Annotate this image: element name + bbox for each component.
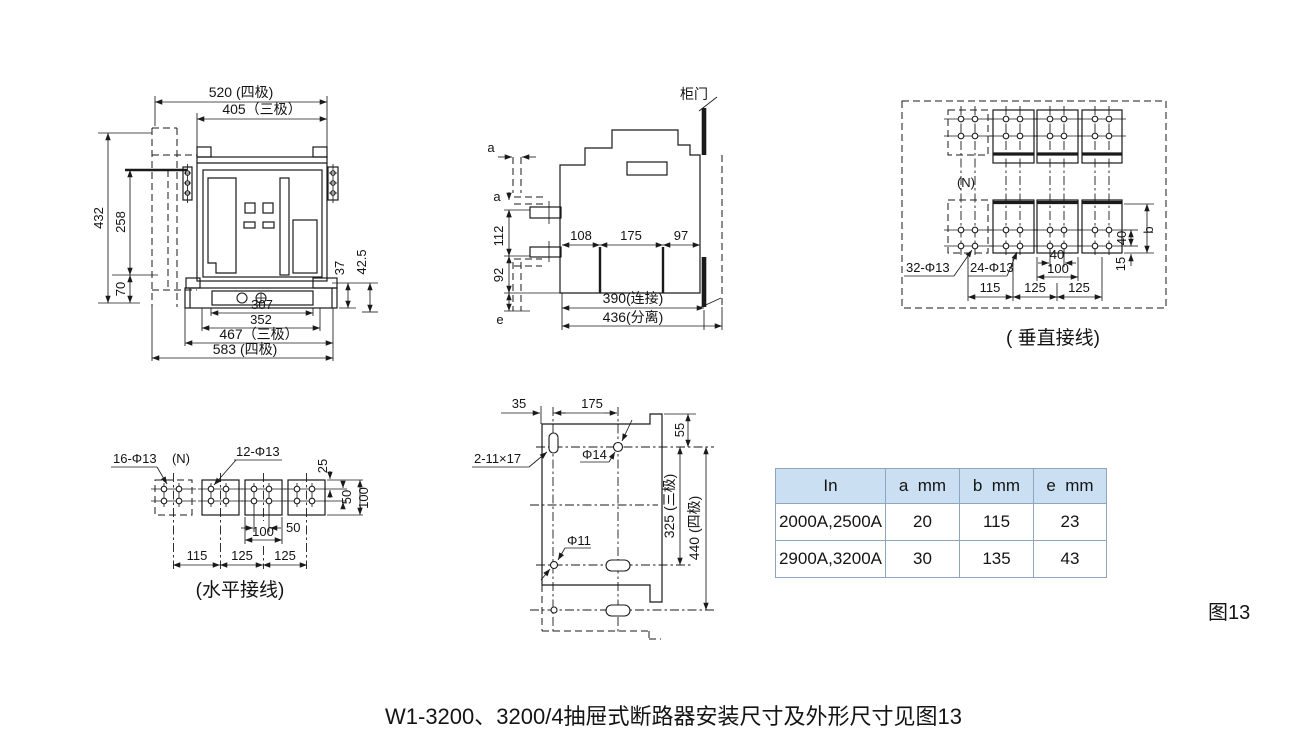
mounting-plate-drawing: 35 175 2-11×17 Φ14 Φ11 55 325 (三极) 440 (… [472, 396, 716, 639]
vertical-wiring-caption: ( 垂直接线) [1006, 327, 1100, 349]
hole-phi11 [551, 562, 558, 569]
dim-467: 467（三极） [219, 326, 298, 342]
hole-count-12: 12-Φ13 [236, 444, 280, 459]
cabinet-door-label: 柜门 [680, 86, 708, 102]
neutral-pole-label: (N) [957, 175, 975, 190]
dim-436-separated: 436(分离) [603, 309, 664, 325]
hole-count-16: 16-Φ13 [113, 451, 157, 466]
neutral-pole-label: (N) [172, 451, 190, 466]
phi11-label: Φ11 [567, 533, 591, 548]
dim-25: 25 [315, 459, 330, 473]
vertical-wiring-drawing: (N) 32-Φ13 24-Φ13 40 100 [902, 101, 1166, 349]
cell-e-0: 23 [1034, 504, 1107, 541]
spec-table-header-row: In a mm b mm e mm [776, 469, 1107, 504]
dim-520: 520 (四极) [209, 84, 274, 100]
dim-a-top: a [487, 140, 495, 155]
cell-in-0: 2000A,2500A [776, 504, 886, 541]
dim-15: 15 [1113, 257, 1128, 271]
dim-37: 37 [332, 261, 347, 275]
cell-in-1: 2900A,3200A [776, 541, 886, 578]
dim-35: 35 [512, 396, 526, 411]
dim-175-side: 175 [620, 228, 642, 243]
dim-40-horizontal: 40 [1050, 247, 1064, 262]
dim-42-5: 42.5 [354, 249, 369, 274]
slot-hole-11x17 [549, 433, 558, 453]
cell-a-1: 30 [886, 541, 960, 578]
spec-table: In a mm b mm e mm 2000A,2500A 20 115 23 … [775, 468, 1107, 578]
col-header-b: b mm [960, 469, 1034, 504]
dim-a-left: a [493, 189, 501, 204]
dim-175-plate: 175 [581, 396, 603, 411]
dim-e: e [496, 312, 503, 327]
cell-b-0: 115 [960, 504, 1034, 541]
dim-432: 432 [91, 207, 106, 229]
dim-405: 405（三极） [222, 101, 301, 117]
dim-258: 258 [113, 211, 128, 233]
col-header-e: e mm [1034, 469, 1107, 504]
horizontal-wiring-caption: (水平接线) [196, 579, 285, 601]
dim-352: 352 [250, 312, 272, 327]
dim-125b-hw: 125 [274, 548, 296, 563]
dim-40-vertical: 40 [1114, 231, 1129, 245]
technical-drawing-canvas: 520 (四极) 405（三极） 432 258 70 37 42.5 307 … [0, 0, 1313, 746]
dim-125a-vw: 125 [1024, 280, 1046, 295]
dim-125b-vw: 125 [1068, 280, 1090, 295]
dim-50-vertical: 50 [339, 490, 354, 504]
terminal-block [944, 200, 1126, 253]
dim-325-3pole: 325 (三极) [661, 474, 677, 539]
terminal-block [944, 110, 1126, 163]
horizontal-wiring-drawing: 16-Φ13 (N) 12-Φ13 25 50 100 50 100 115 1… [111, 444, 371, 601]
front-view-drawing: 520 (四极) 405（三极） 432 258 70 37 42.5 307 … [91, 84, 378, 361]
table-row: 2000A,2500A 20 115 23 [776, 504, 1107, 541]
hole-count-32: 32-Φ13 [906, 260, 950, 275]
dim-100-horizontal: 100 [1047, 261, 1069, 276]
dim-55: 55 [672, 423, 687, 437]
hole-phi14 [614, 443, 623, 452]
mounting-plate-outline [542, 414, 662, 602]
dim-440-4pole: 440 (四极) [686, 496, 702, 561]
slot-label: 2-11×17 [474, 451, 521, 466]
page-caption: W1-3200、3200/4抽屉式断路器安装尺寸及外形尺寸见图13 [385, 699, 962, 731]
dim-112: 112 [491, 226, 506, 247]
dim-307: 307 [251, 297, 273, 312]
dim-100-horizontal: 100 [252, 524, 274, 539]
dim-50-horizontal: 50 [286, 520, 300, 535]
cell-e-1: 43 [1034, 541, 1107, 578]
terminal-block [151, 480, 347, 515]
cell-b-1: 135 [960, 541, 1034, 578]
dim-115-vw: 115 [980, 280, 1001, 295]
cell-a-0: 20 [886, 504, 960, 541]
dim-108: 108 [570, 228, 592, 243]
dim-125a-hw: 125 [231, 548, 253, 563]
breaker-side-profile [560, 130, 700, 293]
figure-page: 520 (四极) 405（三极） 432 258 70 37 42.5 307 … [0, 0, 1313, 746]
figure-number-label: 图13 [1208, 596, 1250, 625]
dim-b: b [1141, 226, 1156, 233]
hole-count-24: 24-Φ13 [970, 260, 1014, 275]
phi14-label: Φ14 [582, 447, 607, 462]
col-header-in: In [776, 469, 886, 504]
drawout-rail-right [328, 164, 338, 203]
table-row: 2900A,3200A 30 135 43 [776, 541, 1107, 578]
dim-115-hw: 115 [187, 548, 208, 563]
dim-583: 583 (四极) [213, 341, 278, 357]
side-view-drawing: 柜门 a a 112 92 e 108 17 [487, 86, 722, 330]
dim-92: 92 [491, 268, 506, 282]
dim-390-connected: 390(连接) [603, 290, 664, 306]
dim-100-vertical: 100 [356, 487, 371, 509]
dim-97: 97 [674, 228, 688, 243]
dim-70: 70 [113, 282, 128, 296]
col-header-a: a mm [886, 469, 960, 504]
